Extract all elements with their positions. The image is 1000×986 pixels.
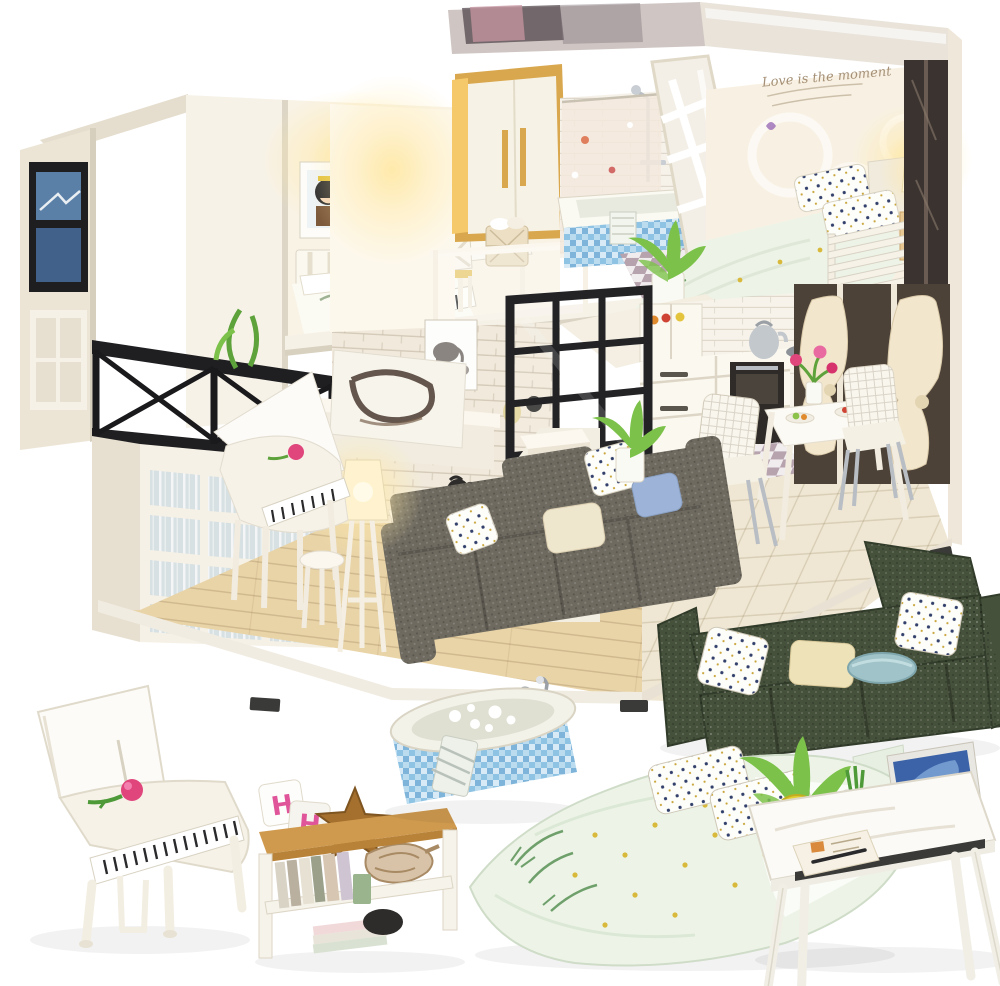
product-grand-piano [30, 686, 250, 954]
piano-stool [300, 551, 344, 628]
bottom-books-stone [313, 909, 403, 953]
dollhouse-product-photo: Love is the moment [0, 0, 1000, 986]
wardrobe-hall [307, 64, 590, 332]
dollhouse: Love is the moment [20, 2, 972, 712]
left-exterior-wall [20, 128, 96, 450]
conch-shell [366, 844, 440, 883]
wardrobe [452, 64, 568, 242]
